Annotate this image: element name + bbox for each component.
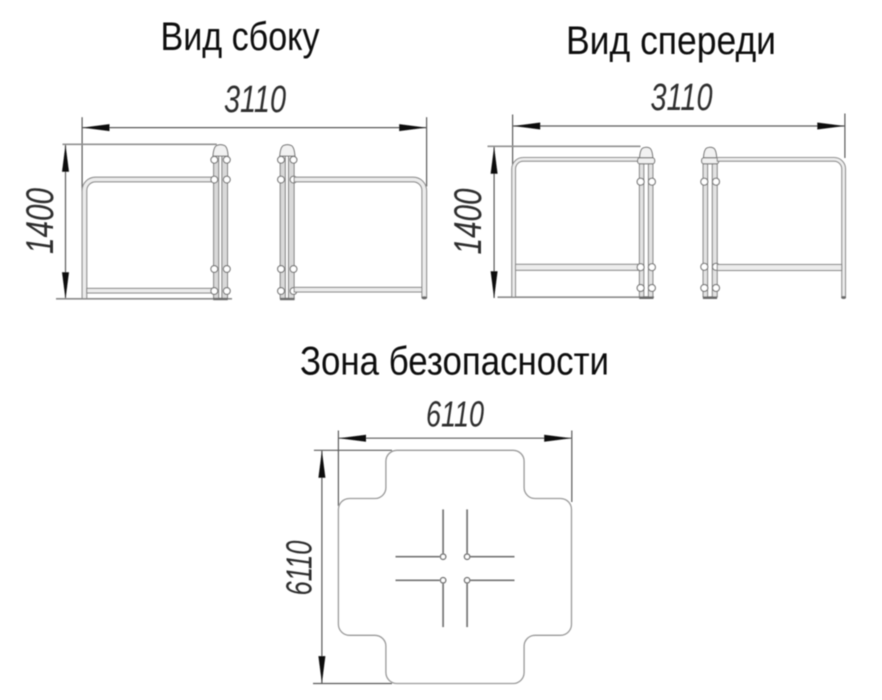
svg-text:Вид спереди: Вид спереди [566,19,776,63]
svg-text:6110: 6110 [279,541,320,596]
svg-text:3110: 3110 [651,77,713,119]
svg-text:1400: 1400 [447,188,490,254]
svg-text:Вид сбоку: Вид сбоку [161,15,320,59]
svg-text:1400: 1400 [19,188,62,254]
svg-text:Зона безопасности: Зона безопасности [300,340,609,384]
svg-text:6110: 6110 [426,394,484,435]
svg-text:3110: 3110 [224,79,286,121]
